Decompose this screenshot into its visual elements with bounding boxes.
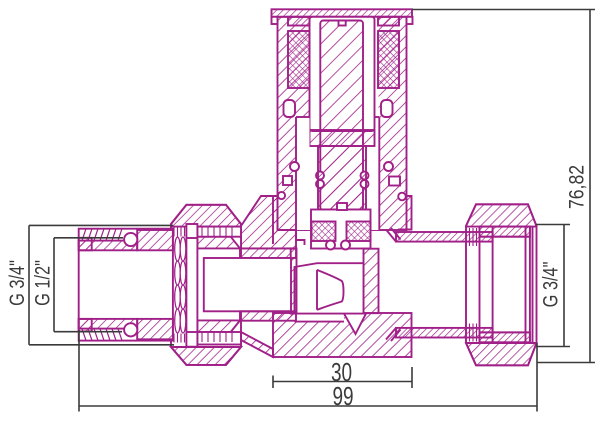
svg-text:99: 99: [332, 381, 353, 411]
svg-text:76,82: 76,82: [565, 165, 589, 209]
svg-text:G 1/2": G 1/2": [31, 260, 54, 306]
svg-text:G 3/4": G 3/4": [539, 262, 562, 308]
svg-text:G 3/4": G 3/4": [5, 260, 28, 306]
